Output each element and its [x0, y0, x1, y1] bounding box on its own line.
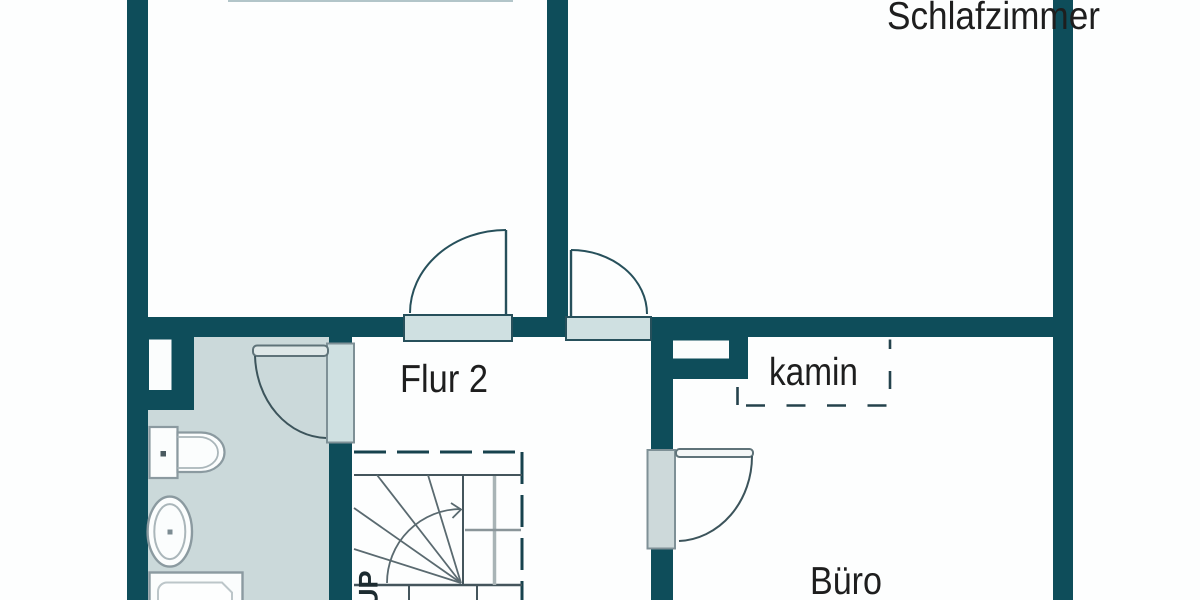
- svg-text:UP: UP: [354, 570, 384, 600]
- svg-text:Schlafzimmer: Schlafzimmer: [887, 0, 1100, 38]
- svg-text:kamin: kamin: [769, 351, 858, 394]
- svg-text:Büro: Büro: [810, 560, 882, 600]
- svg-text:Flur 2: Flur 2: [400, 358, 488, 401]
